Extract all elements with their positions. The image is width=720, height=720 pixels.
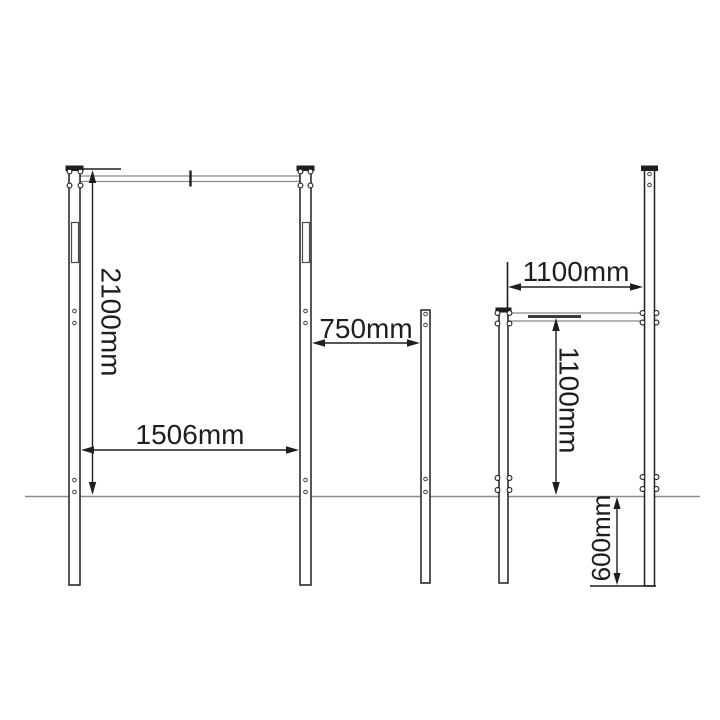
bolt-head — [640, 320, 645, 325]
arrowhead-right-icon — [286, 446, 299, 454]
post-hole — [424, 490, 428, 494]
bolt-head — [654, 320, 659, 325]
bolt-head — [507, 476, 512, 481]
arrowhead-left-icon — [508, 283, 521, 291]
mounting-slot — [72, 223, 79, 263]
bolt-head — [495, 476, 500, 481]
bolt-head — [67, 183, 72, 188]
dimension-label: 1506mm — [136, 419, 245, 450]
bolt-head — [654, 311, 659, 316]
bolt-head — [298, 183, 303, 188]
post-hole — [73, 309, 77, 313]
low-frame-tall-post — [645, 167, 655, 586]
bolt-head — [507, 321, 512, 326]
diagram-canvas: 2100mm 1506mm 750mm 1100mm 1100mm 600mm — [0, 0, 720, 720]
bolt-head — [654, 475, 659, 480]
dimension-label: 1100mm — [554, 347, 585, 454]
dimension-label: 1100mm — [523, 256, 630, 287]
post-hole — [304, 309, 308, 313]
bolt-head — [308, 183, 313, 188]
bolt-head — [507, 488, 512, 493]
dimension-middle-post-gap: 750mm — [312, 313, 420, 347]
arrowhead-left-icon — [81, 446, 94, 454]
post-hole — [73, 321, 77, 325]
dimension-low-frame-width: 1100mm — [508, 256, 644, 309]
post-hole — [424, 312, 428, 316]
bolt-head — [640, 487, 645, 492]
bolt-head — [654, 487, 659, 492]
low-left-post — [499, 310, 508, 583]
middle-post-group — [421, 310, 430, 583]
arrowhead-down-icon — [552, 482, 560, 495]
post-hole — [648, 183, 652, 187]
mounting-slot — [303, 223, 310, 263]
bolt-head — [78, 169, 83, 174]
bolt-head — [495, 311, 500, 316]
bolt-head — [78, 183, 83, 188]
post-hole — [73, 490, 77, 494]
bolt-head — [298, 169, 303, 174]
dimension-label: 750mm — [319, 313, 412, 344]
middle-post — [421, 310, 430, 583]
arrowhead-right-icon — [630, 283, 643, 291]
post-hole — [424, 477, 428, 481]
dimension-label: 600mm — [586, 495, 616, 582]
dimension-label: 2100mm — [96, 268, 127, 377]
arrowhead-down-icon — [89, 482, 96, 495]
dimension-low-bar-height: 1100mm — [552, 318, 584, 495]
bolt-head — [640, 475, 645, 480]
bolt-head — [495, 321, 500, 326]
bolt-head — [640, 311, 645, 316]
bolt-head — [495, 488, 500, 493]
post-hole — [73, 478, 77, 482]
post-hole — [304, 490, 308, 494]
dimension-tall-frame-width: 1506mm — [81, 419, 299, 454]
low-frame-tall-post-cap — [641, 166, 658, 172]
post-hole — [648, 172, 652, 176]
bolt-head — [308, 169, 313, 174]
bolt-head — [67, 169, 72, 174]
post-hole — [304, 478, 308, 482]
post-hole — [424, 323, 428, 327]
post-hole — [304, 321, 308, 325]
bolt-head — [507, 311, 512, 316]
